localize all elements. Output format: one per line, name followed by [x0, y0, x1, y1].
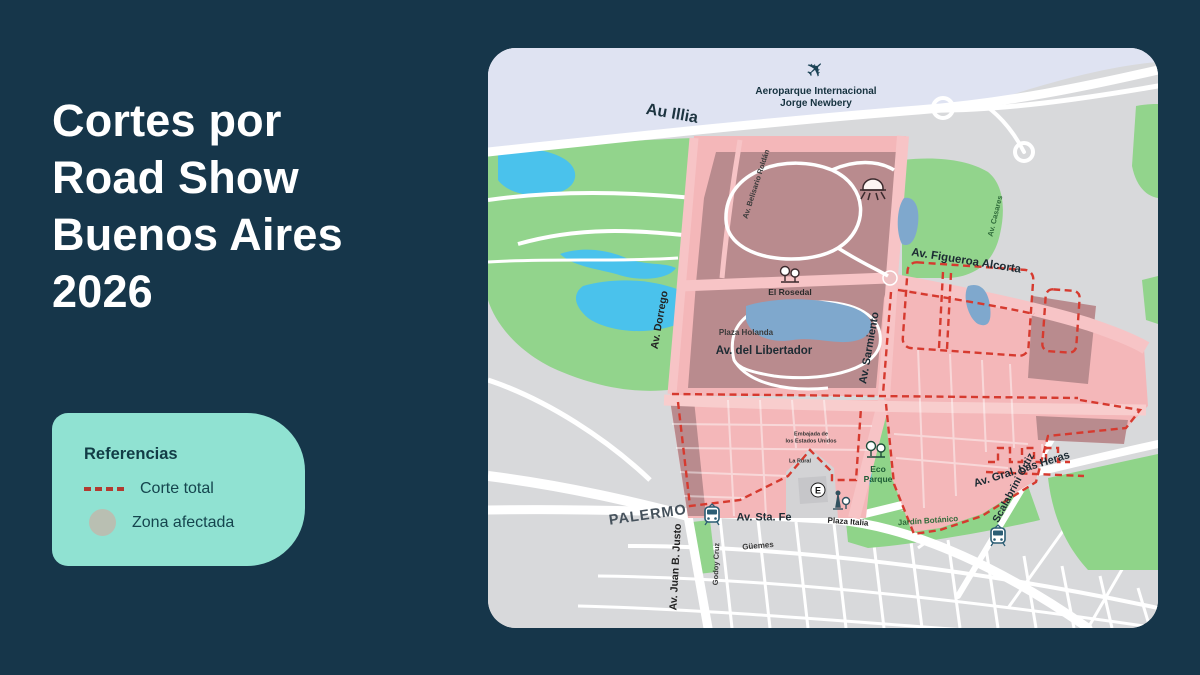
dashed-line-swatch — [84, 487, 124, 491]
title-line-2: Road Show — [52, 149, 492, 206]
infographic-page: Cortes por Road Show Buenos Aires 2026 R… — [0, 0, 1200, 675]
gray-circle-swatch — [89, 509, 116, 536]
legend-item-zona-afectada: Zona afectada — [84, 509, 279, 536]
train-icon-palermo — [705, 504, 719, 525]
legend-title: Referencias — [84, 445, 279, 464]
page-title: Cortes por Road Show Buenos Aires 2026 — [52, 92, 492, 321]
train-icon-scalabrini — [991, 525, 1005, 546]
title-line-3: Buenos Aires — [52, 206, 492, 263]
title-line-1: Cortes por — [52, 92, 492, 149]
map-card: ✈ E Aeroparque Internacional Jorge Newbe… — [488, 48, 1158, 628]
title-line-4: 2026 — [52, 263, 492, 320]
map-graphic — [488, 48, 1158, 628]
legend-item-corte-total: Corte total — [84, 480, 279, 498]
legend-item-label: Zona afectada — [132, 514, 234, 532]
legend-card: Referencias Corte total Zona afectada — [52, 413, 305, 566]
subway-line-e-badge: E — [811, 483, 826, 498]
legend-item-label: Corte total — [140, 480, 214, 498]
